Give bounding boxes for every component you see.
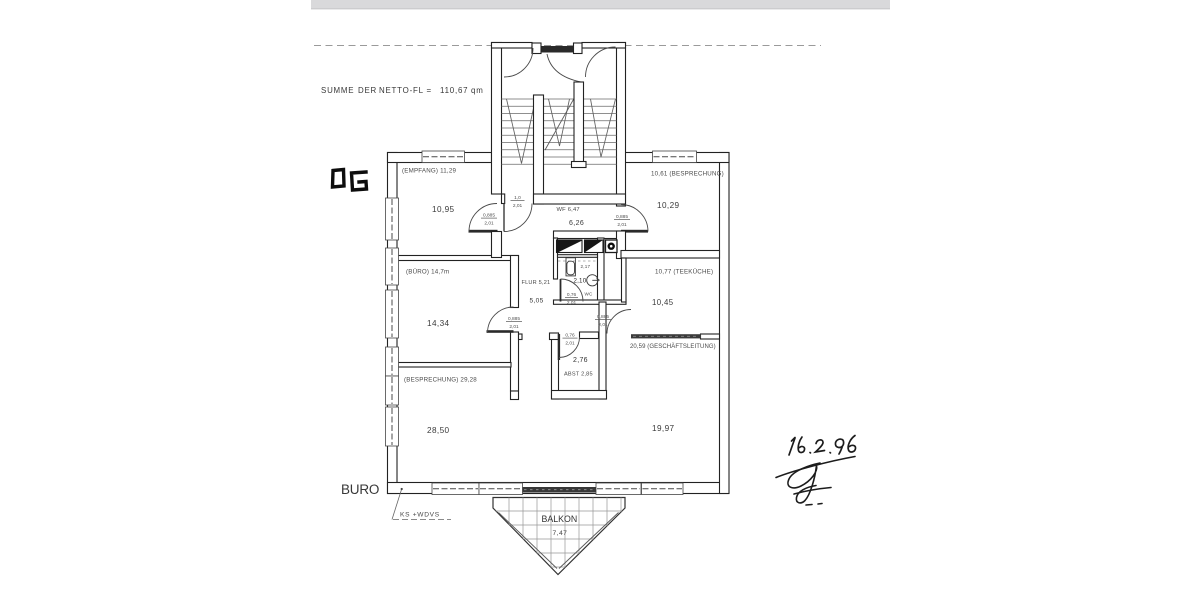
svg-text:(EMPFANG) 11,29: (EMPFANG) 11,29 bbox=[402, 168, 456, 175]
svg-text:BURO: BURO bbox=[341, 482, 379, 497]
svg-text:WC: WC bbox=[585, 292, 594, 297]
svg-text:10,29: 10,29 bbox=[657, 201, 680, 210]
svg-text:(BESPRECHUNG) 29,28: (BESPRECHUNG) 29,28 bbox=[404, 377, 477, 384]
svg-text:2,17: 2,17 bbox=[581, 264, 591, 269]
svg-text:KS +WDVS: KS +WDVS bbox=[400, 512, 440, 519]
svg-text:(BÜRO) 14,7m: (BÜRO) 14,7m bbox=[406, 269, 449, 276]
svg-text:DER: DER bbox=[358, 86, 377, 95]
svg-text:2,10: 2,10 bbox=[574, 278, 587, 285]
svg-text:6,26: 6,26 bbox=[569, 220, 584, 227]
svg-text:2,01: 2,01 bbox=[617, 222, 627, 228]
svg-text:2,01: 2,01 bbox=[509, 324, 519, 330]
svg-text:WF 6,47: WF 6,47 bbox=[557, 207, 580, 213]
svg-text:5,05: 5,05 bbox=[530, 298, 544, 305]
svg-text:ABST 2,85: ABST 2,85 bbox=[564, 372, 593, 378]
svg-text:10,77 (TEEKÜCHE): 10,77 (TEEKÜCHE) bbox=[655, 269, 713, 276]
svg-text:0,885: 0,885 bbox=[616, 214, 628, 220]
svg-text:0,885: 0,885 bbox=[483, 213, 495, 219]
svg-text:qm: qm bbox=[471, 86, 484, 95]
svg-text:0,76: 0,76 bbox=[567, 292, 577, 298]
svg-text:NETTO-FL: NETTO-FL bbox=[379, 86, 424, 95]
svg-text:2,76: 2,76 bbox=[573, 357, 588, 364]
svg-text:FLUR 5,21: FLUR 5,21 bbox=[522, 280, 551, 286]
svg-text:14,34: 14,34 bbox=[427, 319, 450, 328]
svg-text:2,01: 2,01 bbox=[598, 322, 608, 328]
svg-text:2,01: 2,01 bbox=[484, 221, 494, 227]
svg-text:20,59 (GESCHÄFTSLEITUNG): 20,59 (GESCHÄFTSLEITUNG) bbox=[630, 343, 716, 350]
svg-text:2,01: 2,01 bbox=[513, 203, 523, 209]
svg-text:19,97: 19,97 bbox=[652, 424, 675, 433]
svg-text:0,885: 0,885 bbox=[597, 314, 609, 320]
svg-text:28,50: 28,50 bbox=[427, 426, 450, 435]
svg-text:0,76: 0,76 bbox=[565, 333, 575, 339]
svg-text:0,885: 0,885 bbox=[508, 316, 520, 322]
svg-text:10,45: 10,45 bbox=[652, 298, 674, 307]
svg-text:2,01: 2,01 bbox=[567, 300, 577, 306]
svg-text:2,01: 2,01 bbox=[565, 341, 575, 347]
svg-text:7,47: 7,47 bbox=[553, 530, 568, 537]
svg-text:10,61 (BESPRECHUNG): 10,61 (BESPRECHUNG) bbox=[651, 171, 724, 178]
svg-text:BALKON: BALKON bbox=[542, 514, 578, 524]
svg-text:SUMME: SUMME bbox=[321, 86, 354, 95]
svg-text:1,0: 1,0 bbox=[514, 195, 521, 201]
svg-text:=: = bbox=[427, 86, 432, 95]
svg-text:110,67: 110,67 bbox=[440, 86, 468, 95]
svg-text:10,95: 10,95 bbox=[432, 205, 455, 214]
